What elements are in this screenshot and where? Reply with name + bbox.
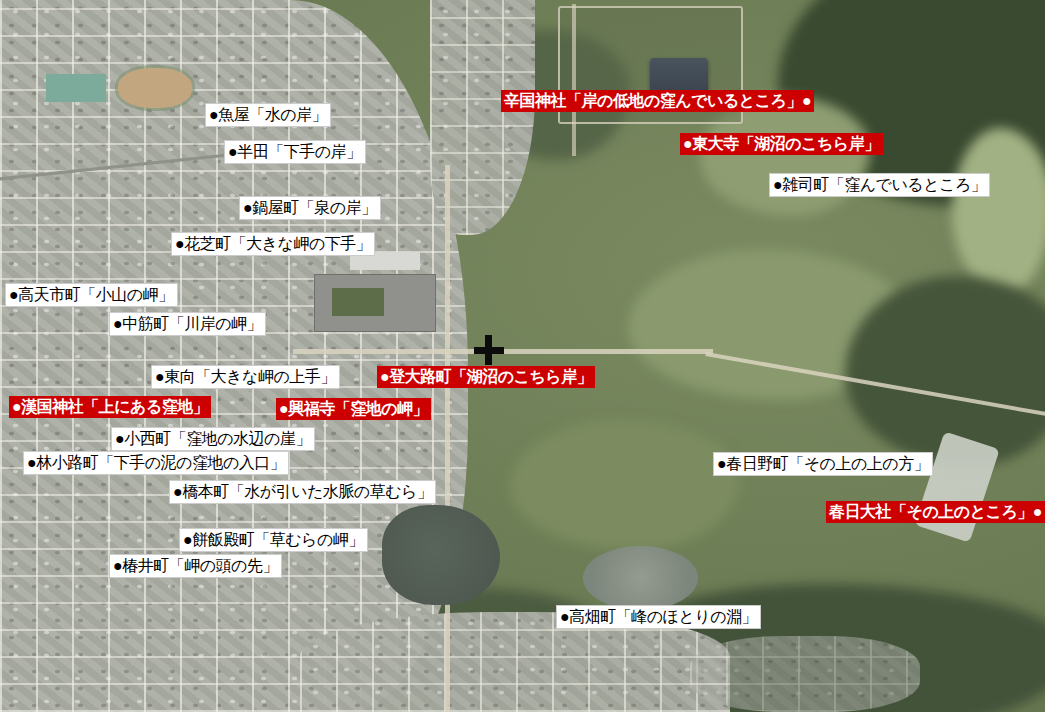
map-label-konishicho: ●小西町「窪地の水辺の崖」	[111, 427, 315, 451]
school-ground	[118, 68, 192, 108]
map-label-noboriojicho: ●登大路町「湖沼のこちら岸」	[377, 366, 595, 388]
satellite-map[interactable]: ●魚屋「水の岸」●半田「下手の岸」●鍋屋町「泉の岸」●花芝町「大きな岬の下手」●…	[0, 0, 1045, 712]
office-courtyard	[332, 288, 384, 316]
map-label-karakuni-jinja: 辛国神社「岸の低地の窪んでいるところ」●	[501, 90, 814, 112]
map-label-kasuga-taisha: 春日大社「その上のところ」●	[826, 501, 1045, 523]
cross-bar-vertical	[485, 335, 492, 365]
map-label-nakasujicho: ●中筋町「川岸の岬」	[109, 312, 266, 336]
map-label-hayashikojicho: ●林小路町「下手の泥の窪地の入口」	[23, 451, 289, 475]
map-label-kasuganocho: ●春日野町「その上の上の方」	[713, 452, 933, 476]
pond-large	[382, 505, 500, 605]
field-patch-far-right	[952, 128, 1045, 293]
map-label-mochiidonocho: ●餅飯殿町「草むらの岬」	[179, 528, 368, 552]
map-label-uoya: ●魚屋「水の岸」	[205, 103, 331, 127]
map-label-takabatakecho: ●高畑町「峰のほとりの淵」	[556, 605, 761, 629]
settlement-southeast	[690, 636, 920, 712]
road-vertical-main	[445, 165, 450, 712]
pond-small	[583, 546, 698, 610]
map-label-kangoku-jinja: ●漢国神社「上にある窪地」	[9, 396, 211, 418]
map-label-tsubaicho: ●椿井町「岬の頭の先」	[109, 554, 282, 578]
map-center-cross-marker	[474, 335, 504, 365]
map-label-todaiji: ●東大寺「湖沼のこちら岸」	[680, 133, 883, 155]
green-roof-building	[46, 74, 106, 102]
lawn-patch-center	[510, 420, 740, 550]
map-label-nabeyacho: ●鍋屋町「泉の岸」	[239, 196, 381, 220]
map-label-higashimuki: ●東向「大きな岬の上手」	[151, 365, 340, 389]
map-label-hanashibacho: ●花芝町「大きな岬の下手」	[171, 232, 375, 256]
map-label-hashimotocho: ●橋本町「水が引いた水脈の草むら」	[169, 480, 436, 504]
map-label-kofukuji: ●興福寺「窪地の岬」	[276, 398, 431, 420]
map-label-zoshicho: ●雑司町「窪んでいるところ」	[769, 173, 990, 197]
temple-approach-path	[572, 4, 576, 156]
map-label-handa: ●半田「下手の岸」	[224, 140, 366, 164]
map-label-takamaichicho: ●高天市町「小山の岬」	[5, 283, 178, 307]
